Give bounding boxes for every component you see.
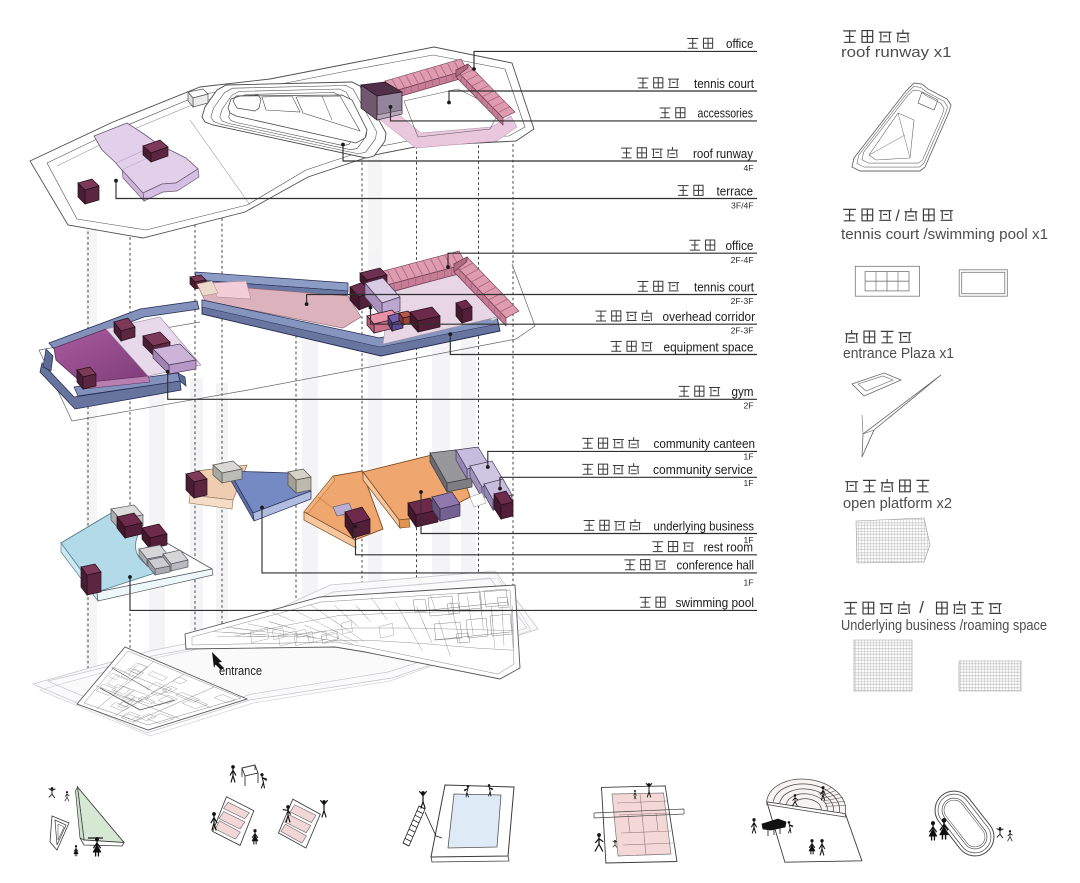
svg-text:community canteen: community canteen [654, 436, 756, 451]
svg-text:2F: 2F [743, 401, 753, 411]
svg-text:office: office [726, 36, 754, 51]
svg-text:tennis court: tennis court [694, 76, 754, 91]
svg-text:/: / [895, 208, 900, 225]
svg-text:2F-4F: 2F-4F [731, 255, 754, 265]
svg-text:1F: 1F [743, 578, 753, 588]
svg-text:/: / [919, 598, 924, 617]
svg-text:accessories: accessories [698, 106, 754, 121]
svg-text:Underlying business /roaming s: Underlying business /roaming space [841, 617, 1047, 634]
svg-text:rest room: rest room [704, 540, 754, 555]
svg-text:2F-3F: 2F-3F [731, 326, 754, 336]
svg-text:office: office [726, 238, 754, 253]
svg-text:conference hall: conference hall [677, 558, 755, 573]
svg-text:swimming pool: swimming pool [676, 595, 755, 610]
svg-text:4F: 4F [743, 163, 753, 173]
svg-text:roof runway x1: roof runway x1 [841, 44, 952, 61]
svg-text:underlying business: underlying business [654, 518, 755, 533]
svg-text:overhead corridor: overhead corridor [663, 309, 756, 324]
svg-text:1F: 1F [743, 478, 753, 488]
svg-text:entrance: entrance [219, 664, 262, 678]
svg-text:open platform x2: open platform x2 [843, 495, 952, 512]
svg-text:tennis court: tennis court [694, 279, 754, 294]
svg-text:roof runway: roof runway [693, 146, 753, 161]
svg-text:2F-3F: 2F-3F [731, 296, 754, 306]
svg-text:3F/4F: 3F/4F [731, 201, 753, 211]
svg-text:terrace: terrace [717, 183, 754, 198]
svg-text:1F: 1F [743, 452, 753, 462]
svg-text:community service: community service [653, 462, 753, 477]
svg-text:gym: gym [732, 384, 754, 399]
svg-text:equipment space: equipment space [664, 339, 754, 354]
svg-text:tennis court /swimming pool x: tennis court /swimming pool x1 [841, 226, 1048, 243]
svg-text:entrance Plaza x1: entrance Plaza x1 [843, 345, 954, 362]
